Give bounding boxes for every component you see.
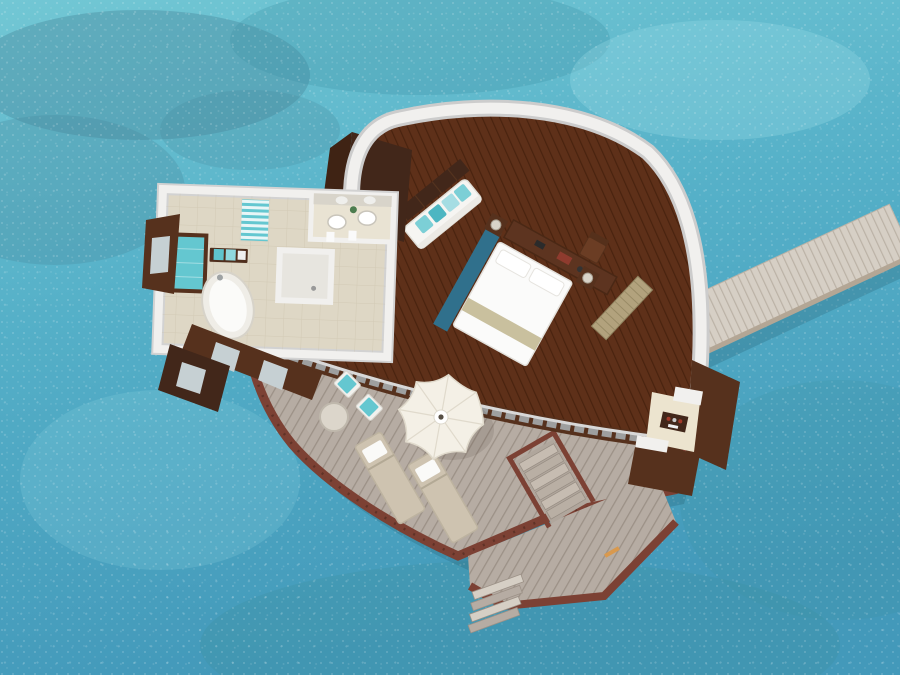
vanity-group — [310, 193, 394, 244]
villa-floorplan-svg — [0, 0, 900, 675]
teal-towel — [226, 249, 236, 260]
hand-towel — [326, 232, 334, 242]
sink-left — [328, 215, 346, 230]
parasol-finial — [438, 414, 443, 419]
overwater-villa-render — [0, 0, 900, 675]
white-towel — [238, 251, 246, 260]
teal-towel — [214, 249, 224, 260]
bath-mat — [240, 199, 269, 242]
hand-towel — [348, 231, 356, 241]
frosted-window — [150, 236, 170, 274]
sink-right — [358, 211, 376, 226]
bistro-table — [320, 403, 348, 431]
walk-in-shower — [278, 250, 332, 302]
